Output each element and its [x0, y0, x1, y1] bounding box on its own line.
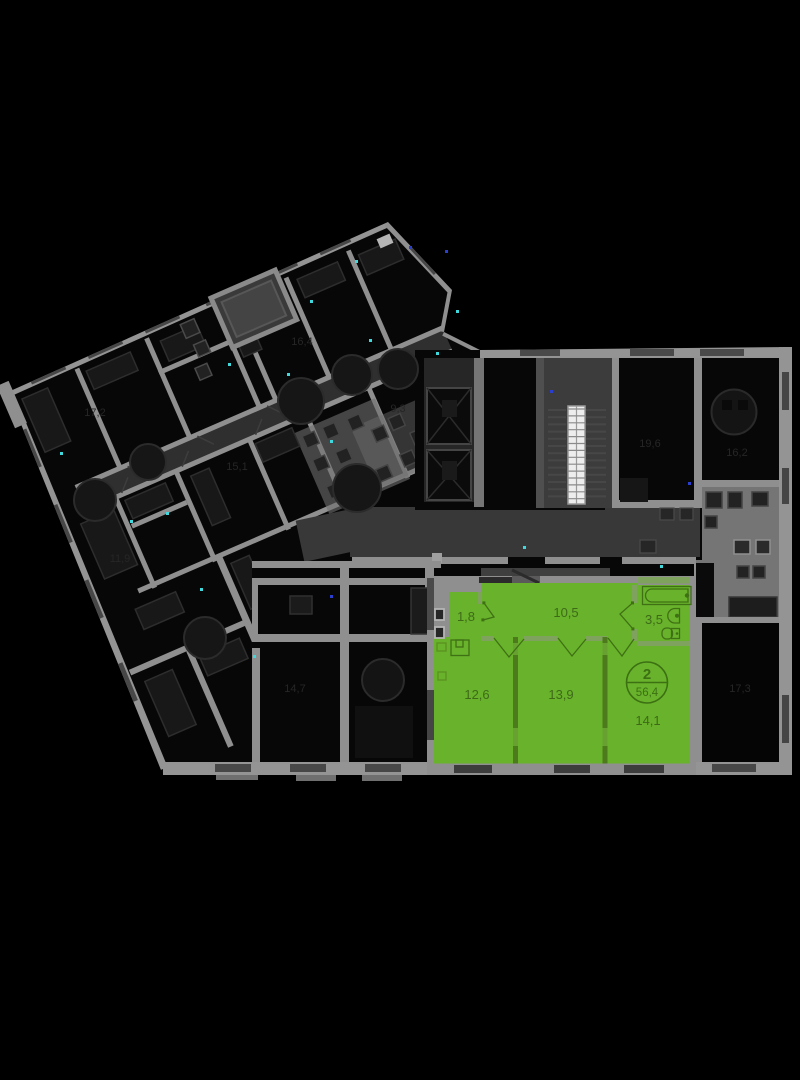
svg-text:2: 2 [643, 666, 651, 683]
svg-text:16,4: 16,4 [291, 336, 312, 348]
svg-text:19,6: 19,6 [639, 438, 660, 450]
svg-text:14,7: 14,7 [284, 683, 305, 695]
svg-text:3,5: 3,5 [645, 612, 663, 627]
svg-text:16,2: 16,2 [726, 447, 747, 459]
svg-text:11,9: 11,9 [110, 553, 131, 565]
svg-text:56,4: 56,4 [636, 687, 659, 699]
svg-text:10,5: 10,5 [553, 605, 578, 620]
svg-text:15,1: 15,1 [226, 461, 247, 473]
svg-text:17,2: 17,2 [84, 407, 105, 419]
svg-text:9,3: 9,3 [390, 403, 405, 415]
svg-text:17,3: 17,3 [729, 683, 750, 695]
svg-text:13,9: 13,9 [548, 687, 573, 702]
svg-text:1,8: 1,8 [457, 609, 475, 624]
svg-text:12,6: 12,6 [464, 687, 489, 702]
svg-text:14,1: 14,1 [635, 713, 660, 728]
